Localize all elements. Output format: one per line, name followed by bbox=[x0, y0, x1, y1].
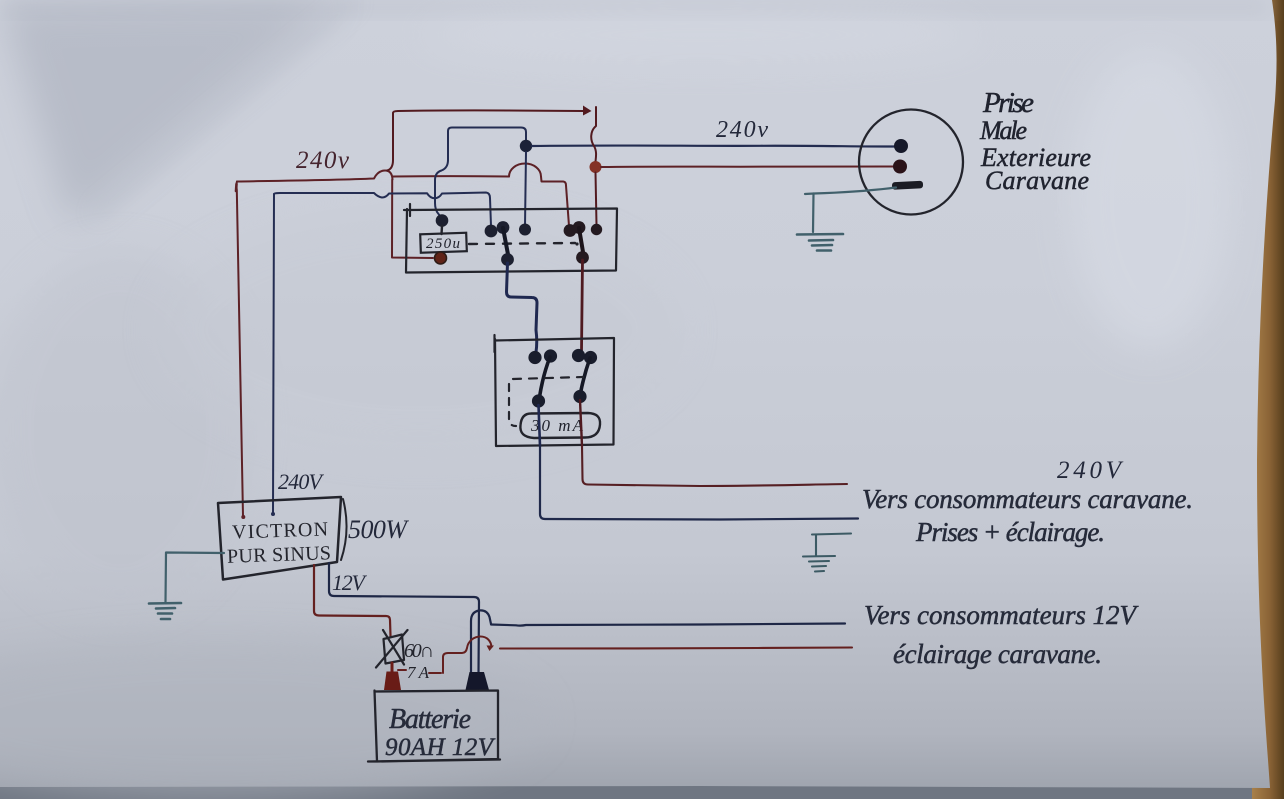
svg-text:60∩: 60∩ bbox=[404, 640, 434, 662]
svg-text:Prise: Prise bbox=[982, 87, 1034, 119]
svg-text:500W: 500W bbox=[348, 515, 409, 544]
svg-text:Batterie: Batterie bbox=[389, 704, 471, 735]
svg-text:240V: 240V bbox=[278, 469, 325, 494]
svg-text:240v: 240v bbox=[296, 147, 350, 174]
svg-text:250u: 250u bbox=[426, 236, 460, 252]
svg-text:Caravane: Caravane bbox=[985, 166, 1089, 195]
svg-text:12V: 12V bbox=[332, 570, 368, 595]
svg-text:éclairage caravane.: éclairage caravane. bbox=[893, 639, 1102, 669]
svg-text:90AH 12V: 90AH 12V bbox=[385, 734, 496, 761]
svg-text:240V: 240V bbox=[1057, 457, 1124, 484]
svg-text:7A: 7A bbox=[407, 663, 430, 682]
svg-text:Vers consommateurs 12V: Vers consommateurs 12V bbox=[864, 600, 1140, 630]
svg-text:Prises + éclairage.: Prises + éclairage. bbox=[915, 517, 1105, 547]
svg-text:Vers consommateurs caravane.: Vers consommateurs caravane. bbox=[862, 484, 1193, 514]
svg-text:Male: Male bbox=[979, 116, 1027, 145]
svg-text:PUR SINUS: PUR SINUS bbox=[227, 542, 332, 568]
